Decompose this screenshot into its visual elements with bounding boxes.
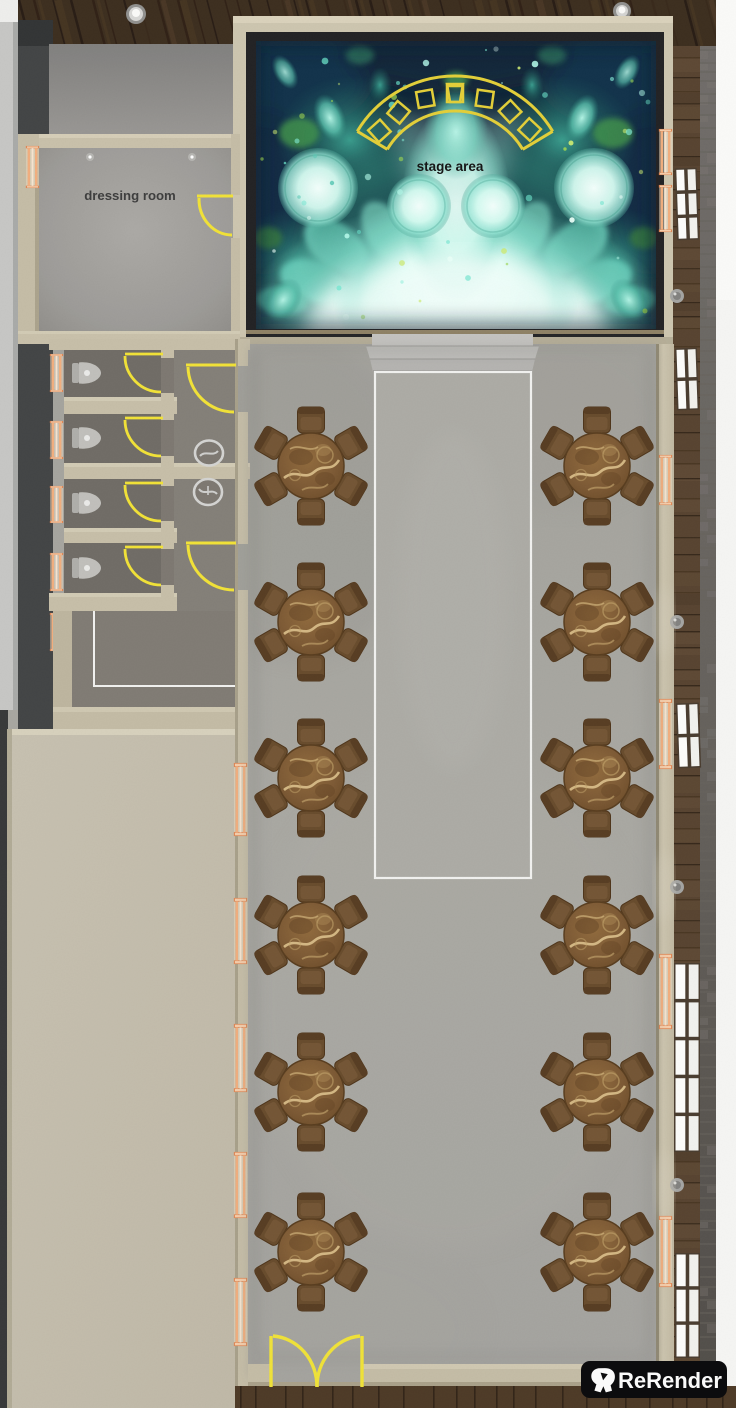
svg-text:ReRender: ReRender (618, 1368, 722, 1393)
